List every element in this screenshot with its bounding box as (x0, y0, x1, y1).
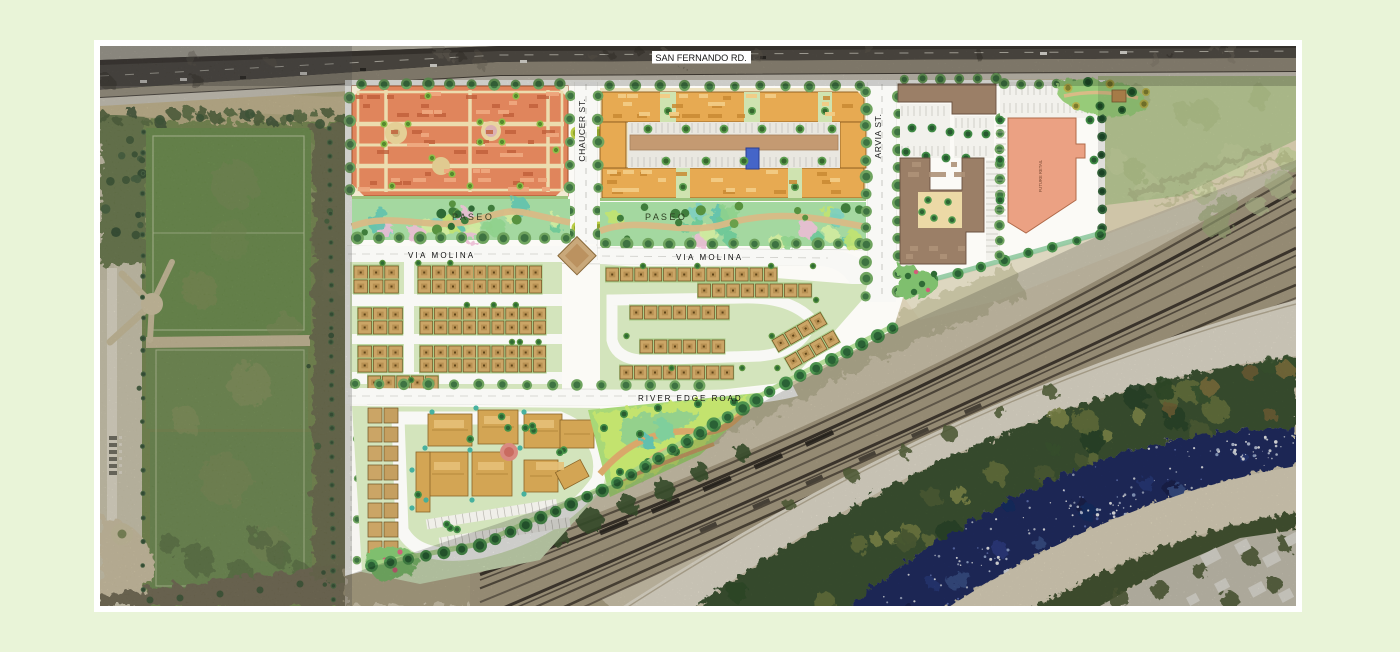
svg-text:RIVER EDGE ROAD: RIVER EDGE ROAD (638, 394, 743, 403)
svg-text:CHAUCER ST.: CHAUCER ST. (577, 98, 587, 161)
svg-text:P A S E O: P A S E O (645, 212, 685, 222)
svg-text:VIA MOLINA: VIA MOLINA (408, 251, 475, 260)
svg-text:SAN FERNANDO RD.: SAN FERNANDO RD. (655, 53, 746, 63)
svg-text:FUTURE RETAIL: FUTURE RETAIL (1038, 159, 1043, 192)
svg-text:P A S E O: P A S E O (452, 212, 492, 222)
svg-text:ARVIA ST.: ARVIA ST. (873, 114, 883, 159)
svg-text:VIA MOLINA: VIA MOLINA (676, 253, 743, 262)
